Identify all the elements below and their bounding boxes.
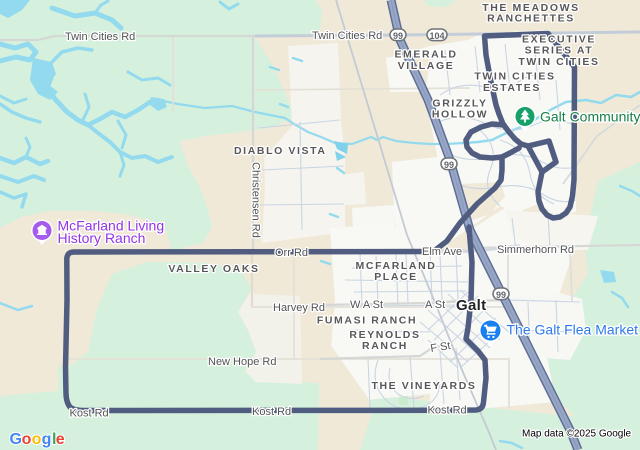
svg-text:Harvey Rd: Harvey Rd	[273, 302, 325, 314]
svg-text:TWIN CITIES: TWIN CITIES	[474, 71, 555, 83]
svg-text:Kost Rd: Kost Rd	[252, 406, 291, 418]
svg-text:99: 99	[393, 31, 403, 41]
svg-text:VALLEY OAKS: VALLEY OAKS	[168, 263, 259, 275]
svg-text:A St: A St	[425, 299, 445, 311]
svg-text:g: g	[42, 431, 52, 448]
svg-text:TWIN CITIES: TWIN CITIES	[518, 56, 599, 68]
svg-text:Kost Rd: Kost Rd	[428, 405, 467, 417]
svg-text:o: o	[22, 431, 32, 448]
svg-text:EMERALD: EMERALD	[394, 49, 457, 61]
svg-text:Twin Cities Rd: Twin Cities Rd	[312, 30, 382, 42]
svg-text:Galt Community: Galt Community	[540, 109, 640, 125]
svg-text:104: 104	[429, 31, 444, 41]
svg-text:ESTATES: ESTATES	[483, 82, 541, 94]
svg-text:HOLLOW: HOLLOW	[432, 109, 488, 121]
svg-text:Orr Rd: Orr Rd	[275, 247, 308, 259]
svg-text:W A St: W A St	[350, 299, 383, 311]
svg-text:Twin Cities Rd: Twin Cities Rd	[65, 31, 135, 43]
svg-text:New Hope Rd: New Hope Rd	[208, 356, 276, 368]
svg-text:THE VINEYARDS: THE VINEYARDS	[371, 380, 476, 392]
svg-text:FUMASI RANCH: FUMASI RANCH	[317, 315, 417, 327]
svg-text:Galt: Galt	[456, 297, 486, 314]
svg-text:VILLAGE: VILLAGE	[398, 60, 455, 72]
svg-text:99: 99	[444, 160, 454, 170]
svg-text:DIABLO VISTA: DIABLO VISTA	[234, 145, 327, 157]
svg-text:99: 99	[496, 290, 506, 300]
svg-text:Kost Rd: Kost Rd	[70, 408, 109, 420]
svg-text:Christensen Rd: Christensen Rd	[250, 162, 262, 238]
svg-text:Elm Ave: Elm Ave	[422, 246, 462, 258]
svg-text:SERIES AT: SERIES AT	[525, 45, 594, 57]
svg-text:RANCHETTES: RANCHETTES	[487, 13, 575, 25]
svg-text:o: o	[32, 431, 42, 448]
svg-text:e: e	[56, 431, 65, 448]
svg-text:PLACE: PLACE	[374, 271, 418, 283]
svg-text:History Ranch: History Ranch	[58, 230, 146, 246]
svg-text:Simmerhorn Rd: Simmerhorn Rd	[497, 244, 574, 256]
svg-text:G: G	[10, 431, 22, 448]
svg-text:Map data ©2025 Google: Map data ©2025 Google	[522, 429, 632, 440]
svg-text:RANCH: RANCH	[362, 340, 408, 352]
svg-text:The Galt Flea Market: The Galt Flea Market	[507, 322, 639, 338]
